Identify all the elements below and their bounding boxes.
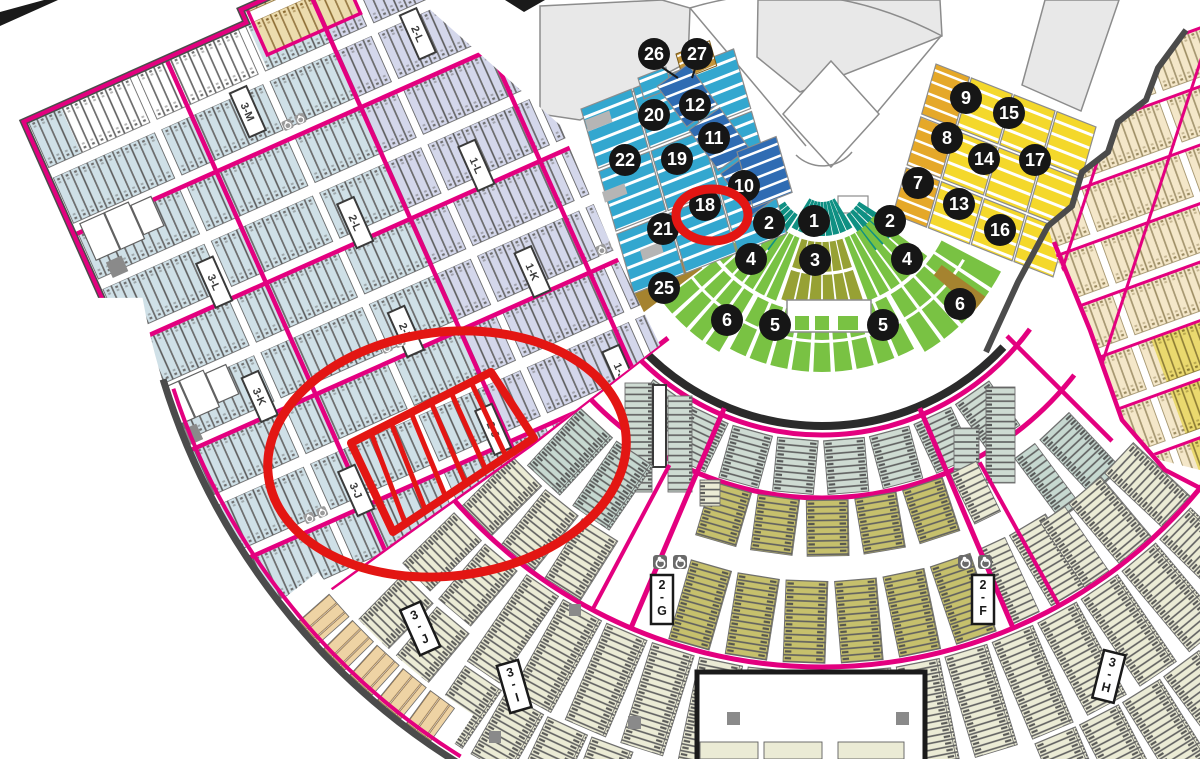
svg-text:2: 2: [764, 213, 774, 233]
svg-text:2: 2: [885, 211, 895, 231]
svg-text:-: -: [660, 590, 664, 604]
svg-text:F: F: [979, 604, 987, 618]
svg-text:9: 9: [961, 88, 971, 108]
svg-text:17: 17: [1025, 150, 1045, 170]
svg-text:6: 6: [955, 294, 965, 314]
svg-text:18: 18: [695, 195, 715, 215]
svg-text:21: 21: [653, 219, 673, 239]
svg-text:-: -: [981, 590, 985, 604]
svg-text:3: 3: [810, 250, 820, 270]
svg-text:6: 6: [722, 310, 732, 330]
svg-text:15: 15: [999, 103, 1019, 123]
svg-text:20: 20: [644, 105, 664, 125]
svg-text:26: 26: [644, 44, 664, 64]
svg-text:27: 27: [687, 44, 707, 64]
svg-text:11: 11: [704, 128, 723, 148]
svg-text:22: 22: [615, 150, 635, 170]
svg-text:4: 4: [902, 249, 912, 269]
svg-text:14: 14: [974, 149, 994, 169]
svg-text:G: G: [657, 604, 667, 618]
svg-text:4: 4: [746, 249, 756, 269]
svg-text:1: 1: [809, 211, 819, 231]
svg-text:12: 12: [685, 95, 705, 115]
svg-text:7: 7: [913, 173, 923, 193]
svg-text:16: 16: [990, 220, 1010, 240]
svg-text:13: 13: [949, 194, 969, 214]
svg-text:5: 5: [770, 315, 780, 335]
svg-text:19: 19: [667, 149, 687, 169]
svg-text:8: 8: [942, 128, 952, 148]
svg-text:25: 25: [654, 278, 674, 298]
svg-text:5: 5: [878, 315, 888, 335]
